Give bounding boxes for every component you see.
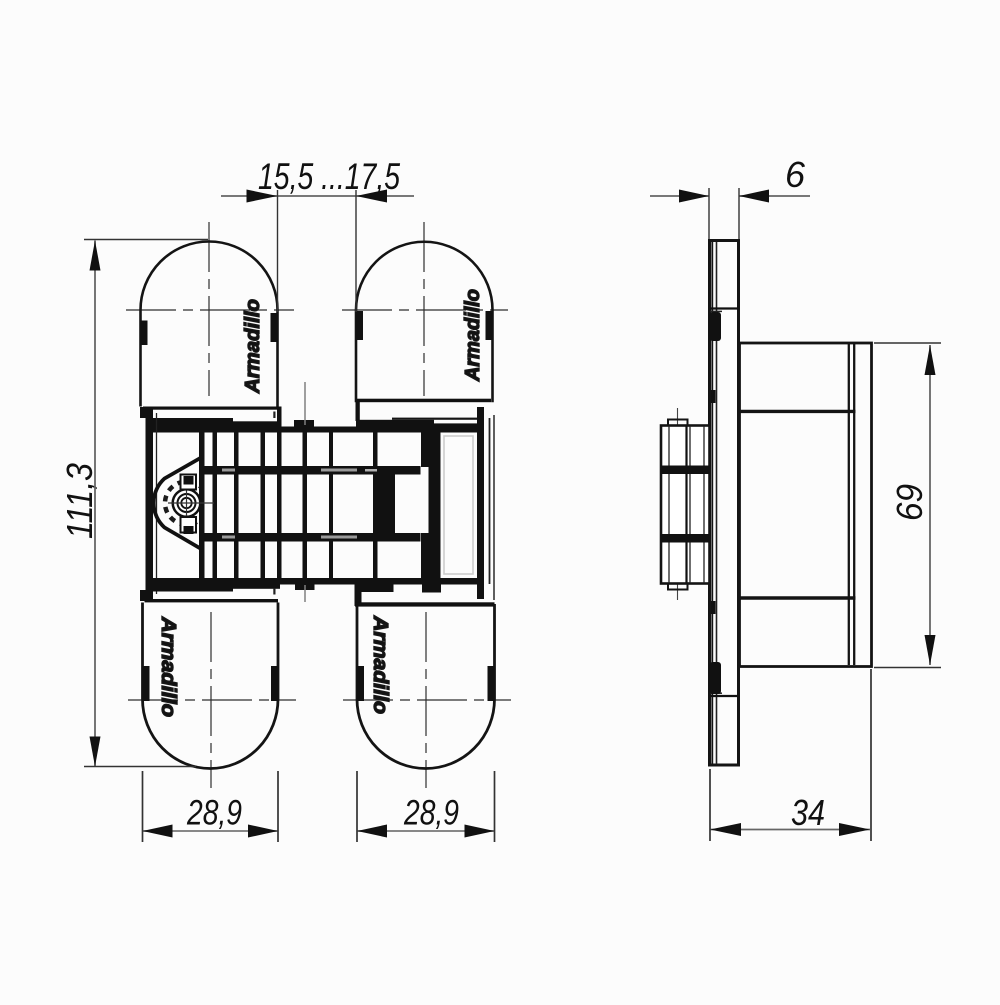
svg-text:15,5 ...17,5: 15,5 ...17,5 bbox=[258, 156, 400, 197]
svg-text:Armadillo: Armadillo bbox=[369, 615, 391, 714]
svg-text:Armadillo: Armadillo bbox=[462, 289, 484, 382]
svg-text:34: 34 bbox=[791, 792, 825, 833]
svg-text:6: 6 bbox=[785, 154, 806, 195]
svg-text:69: 69 bbox=[889, 484, 930, 521]
svg-text:28,9: 28,9 bbox=[186, 794, 242, 833]
svg-text:111,3: 111,3 bbox=[59, 463, 100, 539]
svg-text:Armadillo: Armadillo bbox=[242, 299, 264, 394]
svg-text:Armadillo: Armadillo bbox=[157, 616, 179, 717]
svg-text:28,9: 28,9 bbox=[403, 794, 459, 833]
